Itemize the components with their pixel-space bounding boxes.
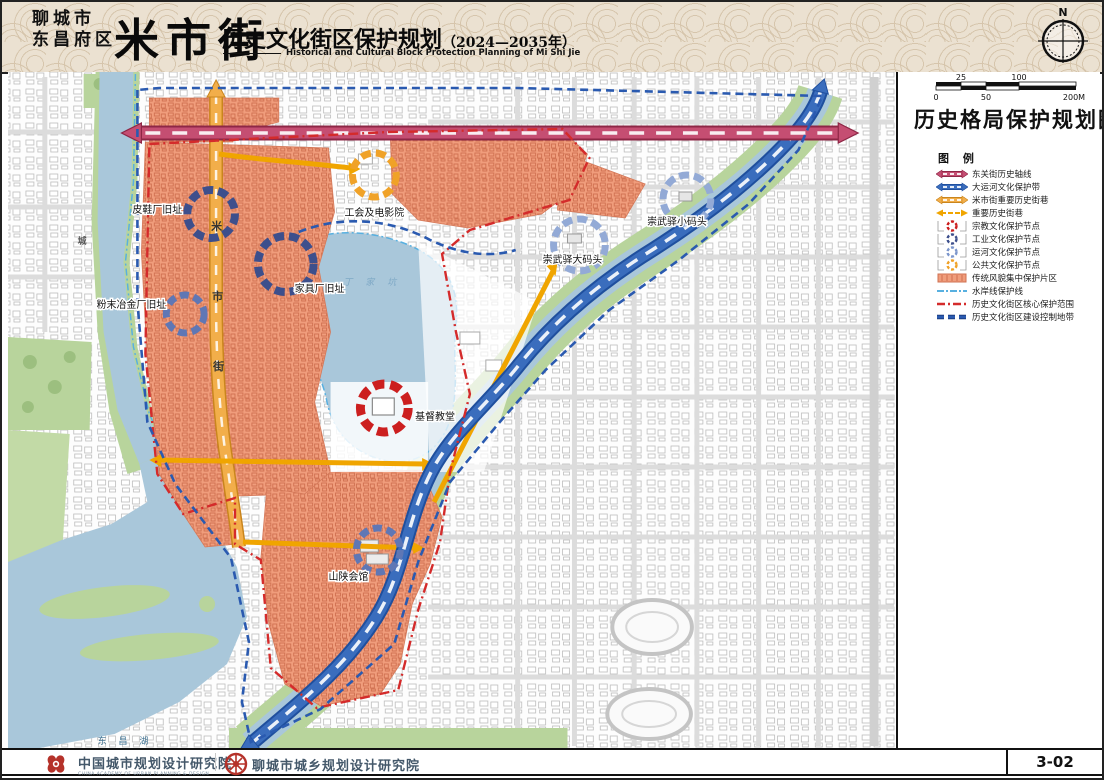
street-char: 街: [212, 359, 224, 373]
canal-node-symbol: [936, 246, 968, 258]
legend-item-traditional-area: 传统风貌集中保护片区: [936, 271, 1074, 284]
control-zone-symbol: [936, 311, 968, 323]
legend-item-industrial-node: 工业文化保护节点: [936, 232, 1074, 245]
legend-label: 东关街历史轴线: [972, 168, 1032, 180]
public-node-symbol: [936, 259, 968, 271]
core-boundary-symbol: [936, 298, 968, 310]
label-jidujiaotang: 基督教堂: [415, 410, 455, 423]
scale-0: 0: [933, 93, 938, 102]
legend-label: 重要历史街巷: [972, 207, 1023, 219]
map-canvas: 皮鞋厂旧址 粉末冶金厂旧址 家具厂旧址 工会及电影院 崇武驿小码头 崇武驿大码头…: [8, 72, 896, 748]
scale-bar: 25 100 0 50 200M: [906, 72, 1096, 102]
legend-label: 运河文化保护节点: [972, 246, 1040, 258]
legend-label: 历史文化街区建设控制地带: [972, 311, 1074, 323]
legend-label: 宗教文化保护节点: [972, 220, 1040, 232]
liaocheng-institute-logo-icon: [224, 752, 248, 776]
legend-panel: 25 100 0 50 200M 历史格局保护规划图 图 例: [896, 72, 1100, 748]
label-lake: 东昌湖: [98, 735, 161, 747]
city-district-label: 聊城市 东昌府区: [32, 9, 116, 51]
label-fenmo: 粉末冶金厂旧址: [97, 298, 167, 311]
legend-label: 历史文化街区核心保护范围: [972, 298, 1074, 310]
legend-list: 东关街历史轴线 大运河文化保护带 米市街重要历史街巷: [936, 167, 1074, 323]
district-label: 东昌府区: [32, 30, 116, 51]
org2-name: 聊城市城乡规划设计研究院: [252, 755, 420, 774]
label-gonghui: 工会及电影院: [344, 206, 404, 219]
main-title-english: Historical and Cultural Block Protection…: [286, 48, 580, 58]
legend-item-core-boundary: 历史文化街区核心保护范围: [936, 297, 1074, 310]
road-char: 城: [78, 235, 87, 247]
legend-title: 图 例: [938, 150, 979, 166]
legend-item-canal-node: 运河文化保护节点: [936, 245, 1074, 258]
legend-label: 传统风貌集中保护片区: [972, 272, 1057, 284]
legend-label: 米市街重要历史街巷: [972, 194, 1049, 206]
arrow-line-symbol: [936, 207, 968, 219]
legend-item-important-street: 重要历史街巷: [936, 206, 1074, 219]
street-band-symbol: [936, 194, 968, 206]
footer-divider: [215, 753, 216, 771]
panel-map-title: 历史格局保护规划图: [914, 104, 1104, 134]
legend-label: 公共文化保护节点: [972, 259, 1040, 271]
scale-100: 100: [1011, 73, 1026, 82]
label-xiaomatou: 崇武驿小码头: [647, 215, 707, 228]
religious-node-symbol: [936, 220, 968, 232]
legend-label: 水岸线保护线: [972, 285, 1023, 297]
scale-25: 25: [956, 73, 966, 82]
north-label: N: [1058, 6, 1067, 19]
caupd-logo-icon: [40, 752, 72, 776]
legend-item-mishijie-street: 米市街重要历史街巷: [936, 193, 1074, 206]
scale-50: 50: [981, 93, 991, 102]
legend-label: 工业文化保护节点: [972, 233, 1040, 245]
title-band: 聊城市 东昌府区 米市街 历史文化街区保护规划（2024—2035年） Hist…: [2, 2, 1102, 74]
shoreline-symbol: [936, 285, 968, 297]
sheet-number: 3-02: [1006, 750, 1102, 774]
legend-item-religious-node: 宗教文化保护节点: [936, 219, 1074, 232]
label-pond: 丁家坑: [343, 277, 409, 288]
org1-block: 中国城市规划设计研究院 CHINA ACADEMY OF URBAN PLANN…: [78, 753, 232, 777]
legend-item-canal-band: 大运河文化保护带: [936, 180, 1074, 193]
label-damatou: 崇武驿大码头: [543, 253, 603, 266]
traditional-area-symbol: [936, 272, 968, 284]
title-underline: [223, 53, 281, 54]
org1-name: 中国城市规划设计研究院: [78, 753, 232, 772]
street-char: 米: [210, 219, 223, 233]
plan-sheet: 聊城市 东昌府区 米市街 历史文化街区保护规划（2024—2035年） Hist…: [0, 0, 1104, 780]
street-char: 市: [212, 289, 223, 303]
legend-item-shoreline: 水岸线保护线: [936, 284, 1074, 297]
scale-200m: 200M: [1063, 93, 1085, 102]
label-jiaju: 家具厂旧址: [295, 282, 345, 295]
legend-label: 大运河文化保护带: [972, 181, 1040, 193]
org1-name-en: CHINA ACADEMY OF URBAN PLANNING & DESIGN: [78, 772, 232, 777]
axis-band-symbol: [936, 168, 968, 180]
label-shanshan: 山陕会馆: [329, 570, 369, 583]
legend-item-control-zone: 历史文化街区建设控制地带: [936, 310, 1074, 323]
north-compass-icon: N: [1030, 3, 1096, 69]
legend-item-public-node: 公共文化保护节点: [936, 258, 1074, 271]
industrial-node-symbol: [936, 233, 968, 245]
legend-item-axis: 东关街历史轴线: [936, 167, 1074, 180]
map-area: 皮鞋厂旧址 粉末冶金厂旧址 家具厂旧址 工会及电影院 崇武驿小码头 崇武驿大码头…: [8, 72, 896, 748]
label-pixiechang: 皮鞋厂旧址: [132, 203, 182, 216]
canal-band-symbol: [936, 181, 968, 193]
footer: 中国城市规划设计研究院 CHINA ACADEMY OF URBAN PLANN…: [2, 748, 1102, 776]
city-label: 聊城市: [32, 9, 116, 30]
